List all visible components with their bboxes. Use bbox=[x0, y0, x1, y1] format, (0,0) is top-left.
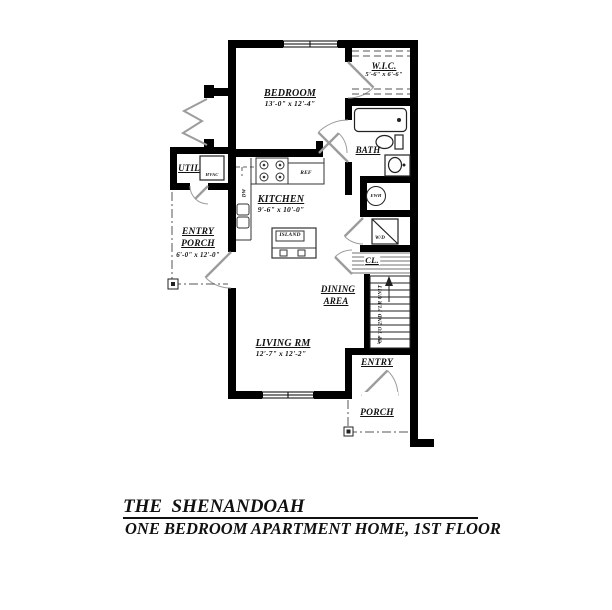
stair-arrowhead-icon bbox=[385, 276, 393, 286]
living-dims: 12'-7" x 12'-2" bbox=[256, 350, 307, 358]
cl-shelves-icon bbox=[352, 253, 410, 273]
wall-bedroom-hall-lower bbox=[345, 162, 352, 195]
upper-cabinet-dashed-lines bbox=[236, 167, 256, 176]
water-heater-label: EWH bbox=[370, 194, 381, 199]
window-living-icon bbox=[262, 391, 314, 399]
cl-door-leaf bbox=[335, 257, 352, 274]
toilet-tank-icon bbox=[395, 135, 403, 149]
living-label: LIVING RM bbox=[256, 339, 311, 349]
wic-label: W.I.C. bbox=[372, 62, 397, 71]
dining-label-2: AREA bbox=[324, 297, 349, 306]
staircase-icon bbox=[370, 276, 410, 348]
tub-faucet-icon bbox=[397, 118, 401, 122]
wall-stair-left bbox=[364, 274, 370, 348]
wall-left-living bbox=[228, 288, 236, 399]
bedroom-label: BEDROOM bbox=[264, 89, 316, 99]
bedroom-door-arc bbox=[339, 133, 347, 153]
kitchen-label: KITCHEN bbox=[258, 195, 304, 205]
wall-closet-cap-top bbox=[204, 85, 214, 98]
floor-plan-sheet: BEDROOM 13'-0" x 12'-4" W.I.C. 5'-6" x 6… bbox=[0, 0, 612, 610]
stool-icon bbox=[298, 250, 305, 256]
bath-door-arc bbox=[318, 120, 348, 132]
dishwasher-label: DW bbox=[243, 189, 248, 197]
bath-label: BATH bbox=[356, 146, 381, 155]
bifold-door-icon bbox=[183, 99, 207, 145]
wall-wic-bottom bbox=[352, 98, 418, 106]
wall-entry-top bbox=[345, 348, 418, 355]
wic-dims: 5'-6" x 6'-6" bbox=[365, 72, 402, 79]
stair-direction-label: UP TO 2ND FLR UNIT bbox=[378, 285, 384, 343]
wall-bedroom-hall-upper bbox=[345, 40, 352, 62]
stove-burners-icon bbox=[260, 161, 284, 181]
wall-closet-stub bbox=[213, 88, 236, 96]
wall-wd-top bbox=[360, 210, 418, 217]
util-label: UTIL bbox=[178, 164, 200, 173]
ref-label: REF bbox=[299, 171, 313, 177]
entry-porch-label-1: ENTRY bbox=[182, 228, 214, 238]
dining-label-1: DINING bbox=[321, 285, 355, 294]
util-door-leaf bbox=[195, 186, 208, 199]
closet-label: CL. bbox=[364, 256, 380, 265]
wall-util-top bbox=[170, 147, 236, 154]
sink-faucet-icon bbox=[403, 164, 406, 167]
plan-title: THE SHENANDOAH bbox=[123, 497, 305, 516]
hvac-label: HVAC bbox=[206, 173, 219, 178]
wd-door-leaf bbox=[345, 218, 363, 236]
wall-right-exterior bbox=[410, 40, 418, 399]
kitchen-dims: 9'-6" x 10'-0" bbox=[258, 206, 305, 214]
wall-porch-stub bbox=[410, 439, 434, 447]
bath-sink-icon bbox=[389, 158, 402, 173]
entry-label: ENTRY bbox=[361, 359, 393, 369]
wd-door-arc bbox=[345, 236, 363, 244]
wall-bedroom-bottom bbox=[236, 149, 316, 157]
wall-bath-bottom bbox=[360, 176, 418, 183]
wall-left-kitchen bbox=[228, 152, 236, 252]
kitchen-sink-icon bbox=[237, 204, 249, 228]
plan-subtitle: ONE BEDROOM APARTMENT HOME, 1ST FLOOR bbox=[125, 521, 501, 538]
entry-porch-dims: 6'-0" x 12'-0" bbox=[176, 252, 220, 259]
porch-entry-door-arc bbox=[206, 278, 232, 289]
window-bedroom-icon bbox=[283, 40, 338, 48]
entry-porch-label-2: PORCH bbox=[181, 240, 215, 250]
island-label: ISLAND bbox=[279, 233, 300, 239]
cl-door-arc bbox=[335, 250, 352, 257]
entry-door-opening bbox=[362, 392, 398, 399]
bath-fixtures bbox=[355, 109, 411, 177]
stool-icon bbox=[280, 250, 287, 256]
wall-entry-left bbox=[345, 348, 352, 399]
washer-dryer-label: W/D bbox=[375, 236, 385, 241]
stair-number-label: 5 bbox=[377, 340, 380, 346]
wall-util-bottom-left bbox=[170, 183, 190, 190]
porch-label: PORCH bbox=[360, 409, 394, 419]
wall-bedroom-hall-mid bbox=[345, 98, 352, 120]
bedroom-dims: 13'-0" x 12'-4" bbox=[265, 100, 316, 108]
wall-wd-bottom bbox=[360, 245, 418, 252]
